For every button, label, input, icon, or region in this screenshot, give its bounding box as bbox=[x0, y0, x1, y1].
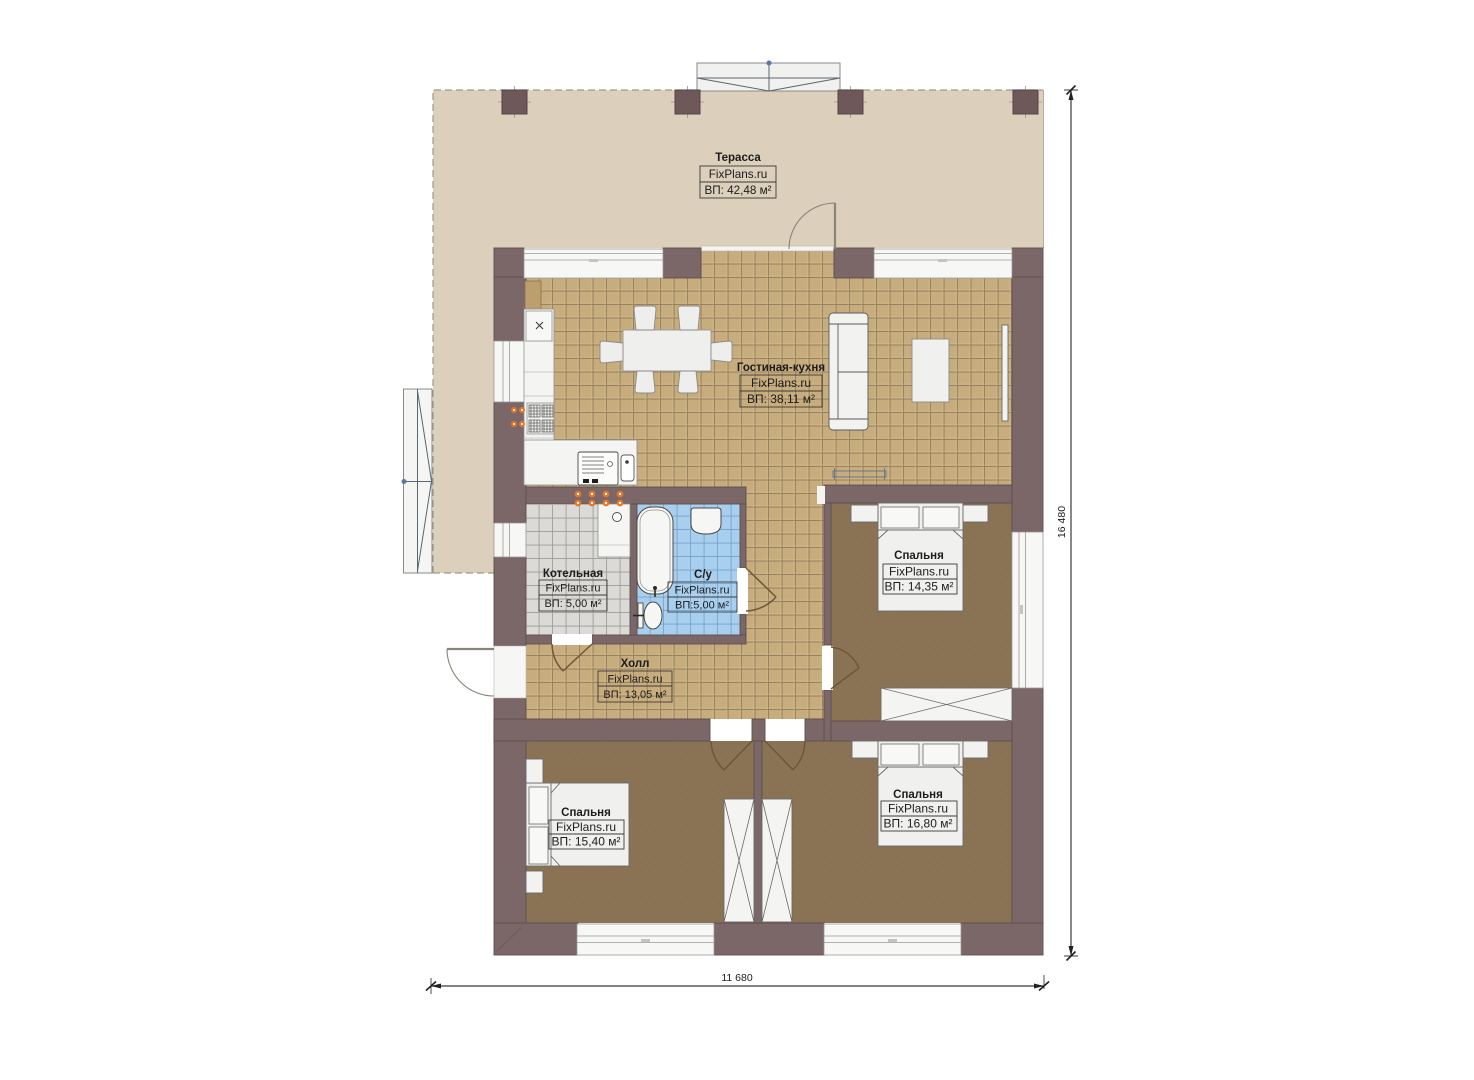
svg-text:ВП: 16,80 м²: ВП: 16,80 м² bbox=[884, 817, 953, 831]
svg-text:ВП: 15,40 м²: ВП: 15,40 м² bbox=[552, 835, 621, 849]
svg-text:Гостиная-кухня: Гостиная-кухня bbox=[737, 362, 825, 374]
svg-text:ВП: 5,00 м²: ВП: 5,00 м² bbox=[544, 598, 601, 610]
svg-text:Спальня: Спальня bbox=[894, 550, 944, 562]
svg-text:ВП: 13,05 м²: ВП: 13,05 м² bbox=[603, 689, 667, 701]
svg-text:FixPlans.ru: FixPlans.ru bbox=[607, 674, 662, 686]
svg-text:ВП: 42,48 м²: ВП: 42,48 м² bbox=[704, 184, 771, 197]
svg-text:С/у: С/у bbox=[694, 569, 713, 581]
svg-text:FixPlans.ru: FixPlans.ru bbox=[888, 802, 948, 816]
svg-text:FixPlans.ru: FixPlans.ru bbox=[674, 585, 729, 597]
svg-text:ВП: 14,35 м²: ВП: 14,35 м² bbox=[885, 580, 954, 594]
svg-text:Спальня: Спальня bbox=[893, 789, 943, 801]
svg-text:FixPlans.ru: FixPlans.ru bbox=[889, 565, 949, 579]
svg-text:FixPlans.ru: FixPlans.ru bbox=[545, 583, 600, 595]
svg-text:16 480: 16 480 bbox=[1056, 506, 1068, 538]
svg-text:FixPlans.ru: FixPlans.ru bbox=[709, 168, 767, 181]
svg-text:Спальня: Спальня bbox=[561, 807, 611, 819]
svg-text:Холл: Холл bbox=[621, 658, 650, 670]
svg-text:FixPlans.ru: FixPlans.ru bbox=[751, 376, 811, 390]
svg-text:11 680: 11 680 bbox=[721, 972, 752, 984]
svg-text:FixPlans.ru: FixPlans.ru bbox=[556, 820, 616, 834]
svg-text:Котельная: Котельная bbox=[543, 568, 603, 580]
svg-text:ВП:5,00 м²: ВП:5,00 м² bbox=[675, 600, 729, 612]
svg-text:ВП: 38,11 м²: ВП: 38,11 м² bbox=[747, 392, 815, 406]
svg-text:Терасса: Терасса bbox=[715, 152, 761, 164]
